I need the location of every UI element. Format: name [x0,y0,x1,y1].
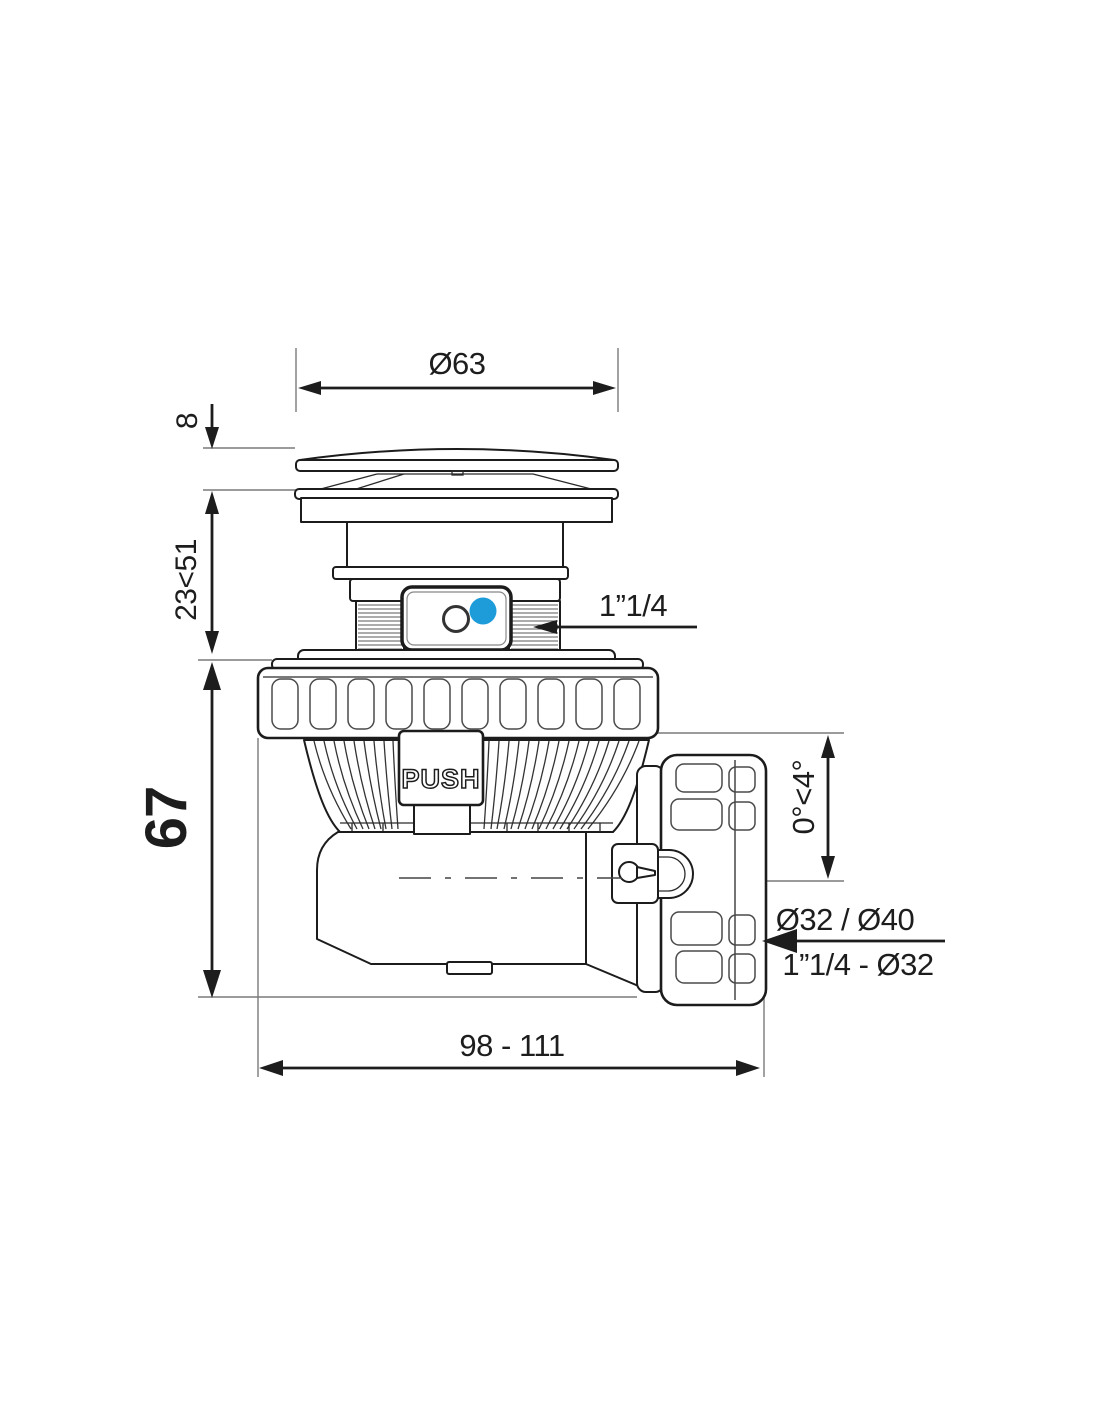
technical-drawing-page: PUSH Ø63 8 23<51 [0,0,1100,1422]
dim-cap-height: 8 [171,404,219,449]
upper-body [295,489,618,601]
indicator-plate [402,587,511,650]
dim-outlet-angle: 0°<4° [786,735,835,879]
cap [296,449,618,490]
dim-body-height-label: 67 [134,787,199,850]
dim-total-length: 98 - 111 [259,1028,760,1076]
dim-cap-height-label: 8 [171,413,204,429]
dim-outlet-diameters: Ø32 / Ø40 1”1/4 - Ø32 [762,902,945,982]
white-indicator-dot [444,607,469,632]
dim-adjust-height: 23<51 [170,491,219,654]
dim-outlet-thread-label: 1”1/4 - Ø32 [782,947,933,982]
dim-outlet-diameters-label: Ø32 / Ø40 [776,902,915,937]
dim-adjust-height-label: 23<51 [170,539,203,621]
keyhole-tab [612,844,693,903]
blue-indicator-dot [470,598,497,625]
trap-body [317,832,586,974]
dim-total-length-label: 98 - 111 [459,1028,564,1063]
dim-outlet-angle-label: 0°<4° [786,760,821,835]
push-label: PUSH [401,764,480,794]
dim-cap-diameter-label: Ø63 [428,346,485,381]
dim-inlet-thread-label: 1”1/4 [599,588,667,623]
dim-body-height: 67 [134,662,221,998]
drain-boss [447,962,492,974]
dim-cap-diameter: Ø63 [298,346,616,395]
drain-trap-diagram: PUSH Ø63 8 23<51 [0,0,1100,1422]
collar-nut [258,668,658,738]
